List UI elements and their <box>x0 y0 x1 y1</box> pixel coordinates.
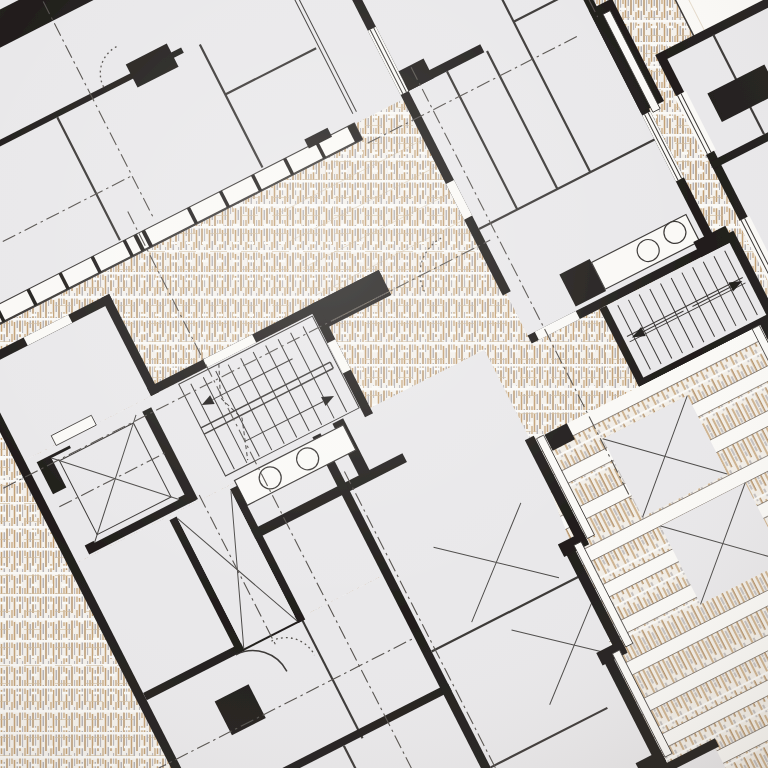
vignette-overlay <box>0 0 768 768</box>
floor-plan-photo: Monochrome architectural floor plan draw… <box>0 0 768 768</box>
photo-stage: Monochrome architectural floor plan draw… <box>0 0 768 768</box>
